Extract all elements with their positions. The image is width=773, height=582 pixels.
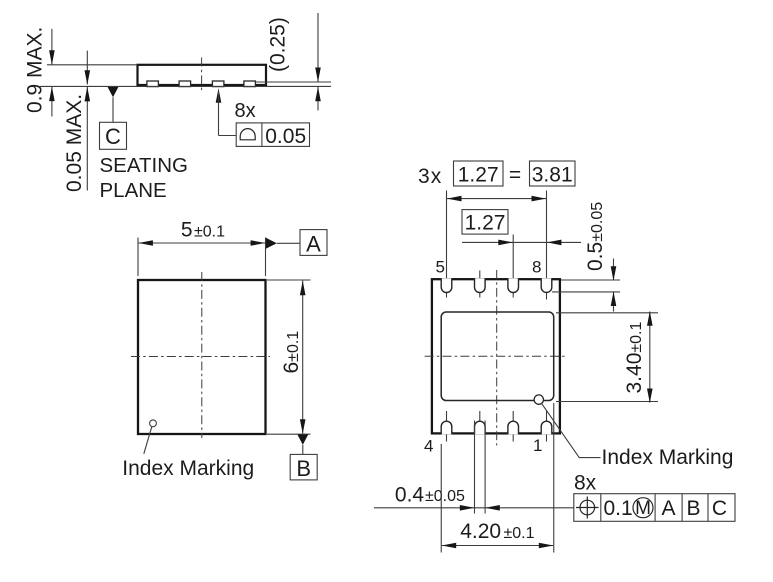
svg-text:x: x: [431, 165, 442, 188]
svg-text:5: 5: [436, 258, 445, 277]
svg-text:0.9 MAX.: 0.9 MAX.: [24, 27, 47, 113]
svg-text:3.81: 3.81: [532, 164, 573, 187]
svg-text:1: 1: [533, 436, 542, 455]
svg-text:SEATING: SEATING: [100, 154, 188, 177]
svg-text:8x: 8x: [574, 472, 597, 495]
svg-text:C: C: [712, 497, 727, 520]
svg-text:1.27: 1.27: [465, 212, 506, 235]
svg-text:4.20: 4.20: [460, 520, 501, 543]
svg-text:Index Marking: Index Marking: [122, 457, 254, 480]
svg-text:8x: 8x: [235, 100, 256, 122]
svg-text:5: 5: [181, 219, 193, 242]
svg-text:PLANE: PLANE: [100, 179, 167, 202]
svg-text:Index Marking: Index Marking: [602, 446, 734, 469]
svg-text:B: B: [296, 456, 311, 481]
svg-text:=: =: [509, 164, 521, 187]
svg-text:8: 8: [532, 258, 541, 277]
svg-text:±0.1: ±0.1: [194, 224, 225, 241]
svg-text:0.05 MAX.: 0.05 MAX.: [63, 94, 86, 192]
svg-text:0.05: 0.05: [265, 125, 306, 148]
svg-text:B: B: [686, 497, 700, 520]
svg-text:A: A: [661, 497, 675, 520]
svg-text:0.1: 0.1: [604, 497, 633, 520]
svg-text:±0.1: ±0.1: [504, 525, 535, 542]
svg-text:3: 3: [418, 165, 430, 188]
svg-text:±0.05: ±0.05: [425, 488, 465, 505]
svg-text:C: C: [105, 124, 121, 149]
svg-text:4: 4: [424, 437, 433, 456]
svg-text:(0.25): (0.25): [266, 17, 289, 72]
svg-text:A: A: [306, 231, 321, 256]
svg-text:1.27: 1.27: [458, 164, 499, 187]
svg-text:M: M: [635, 498, 651, 519]
svg-text:0.4: 0.4: [395, 483, 425, 506]
